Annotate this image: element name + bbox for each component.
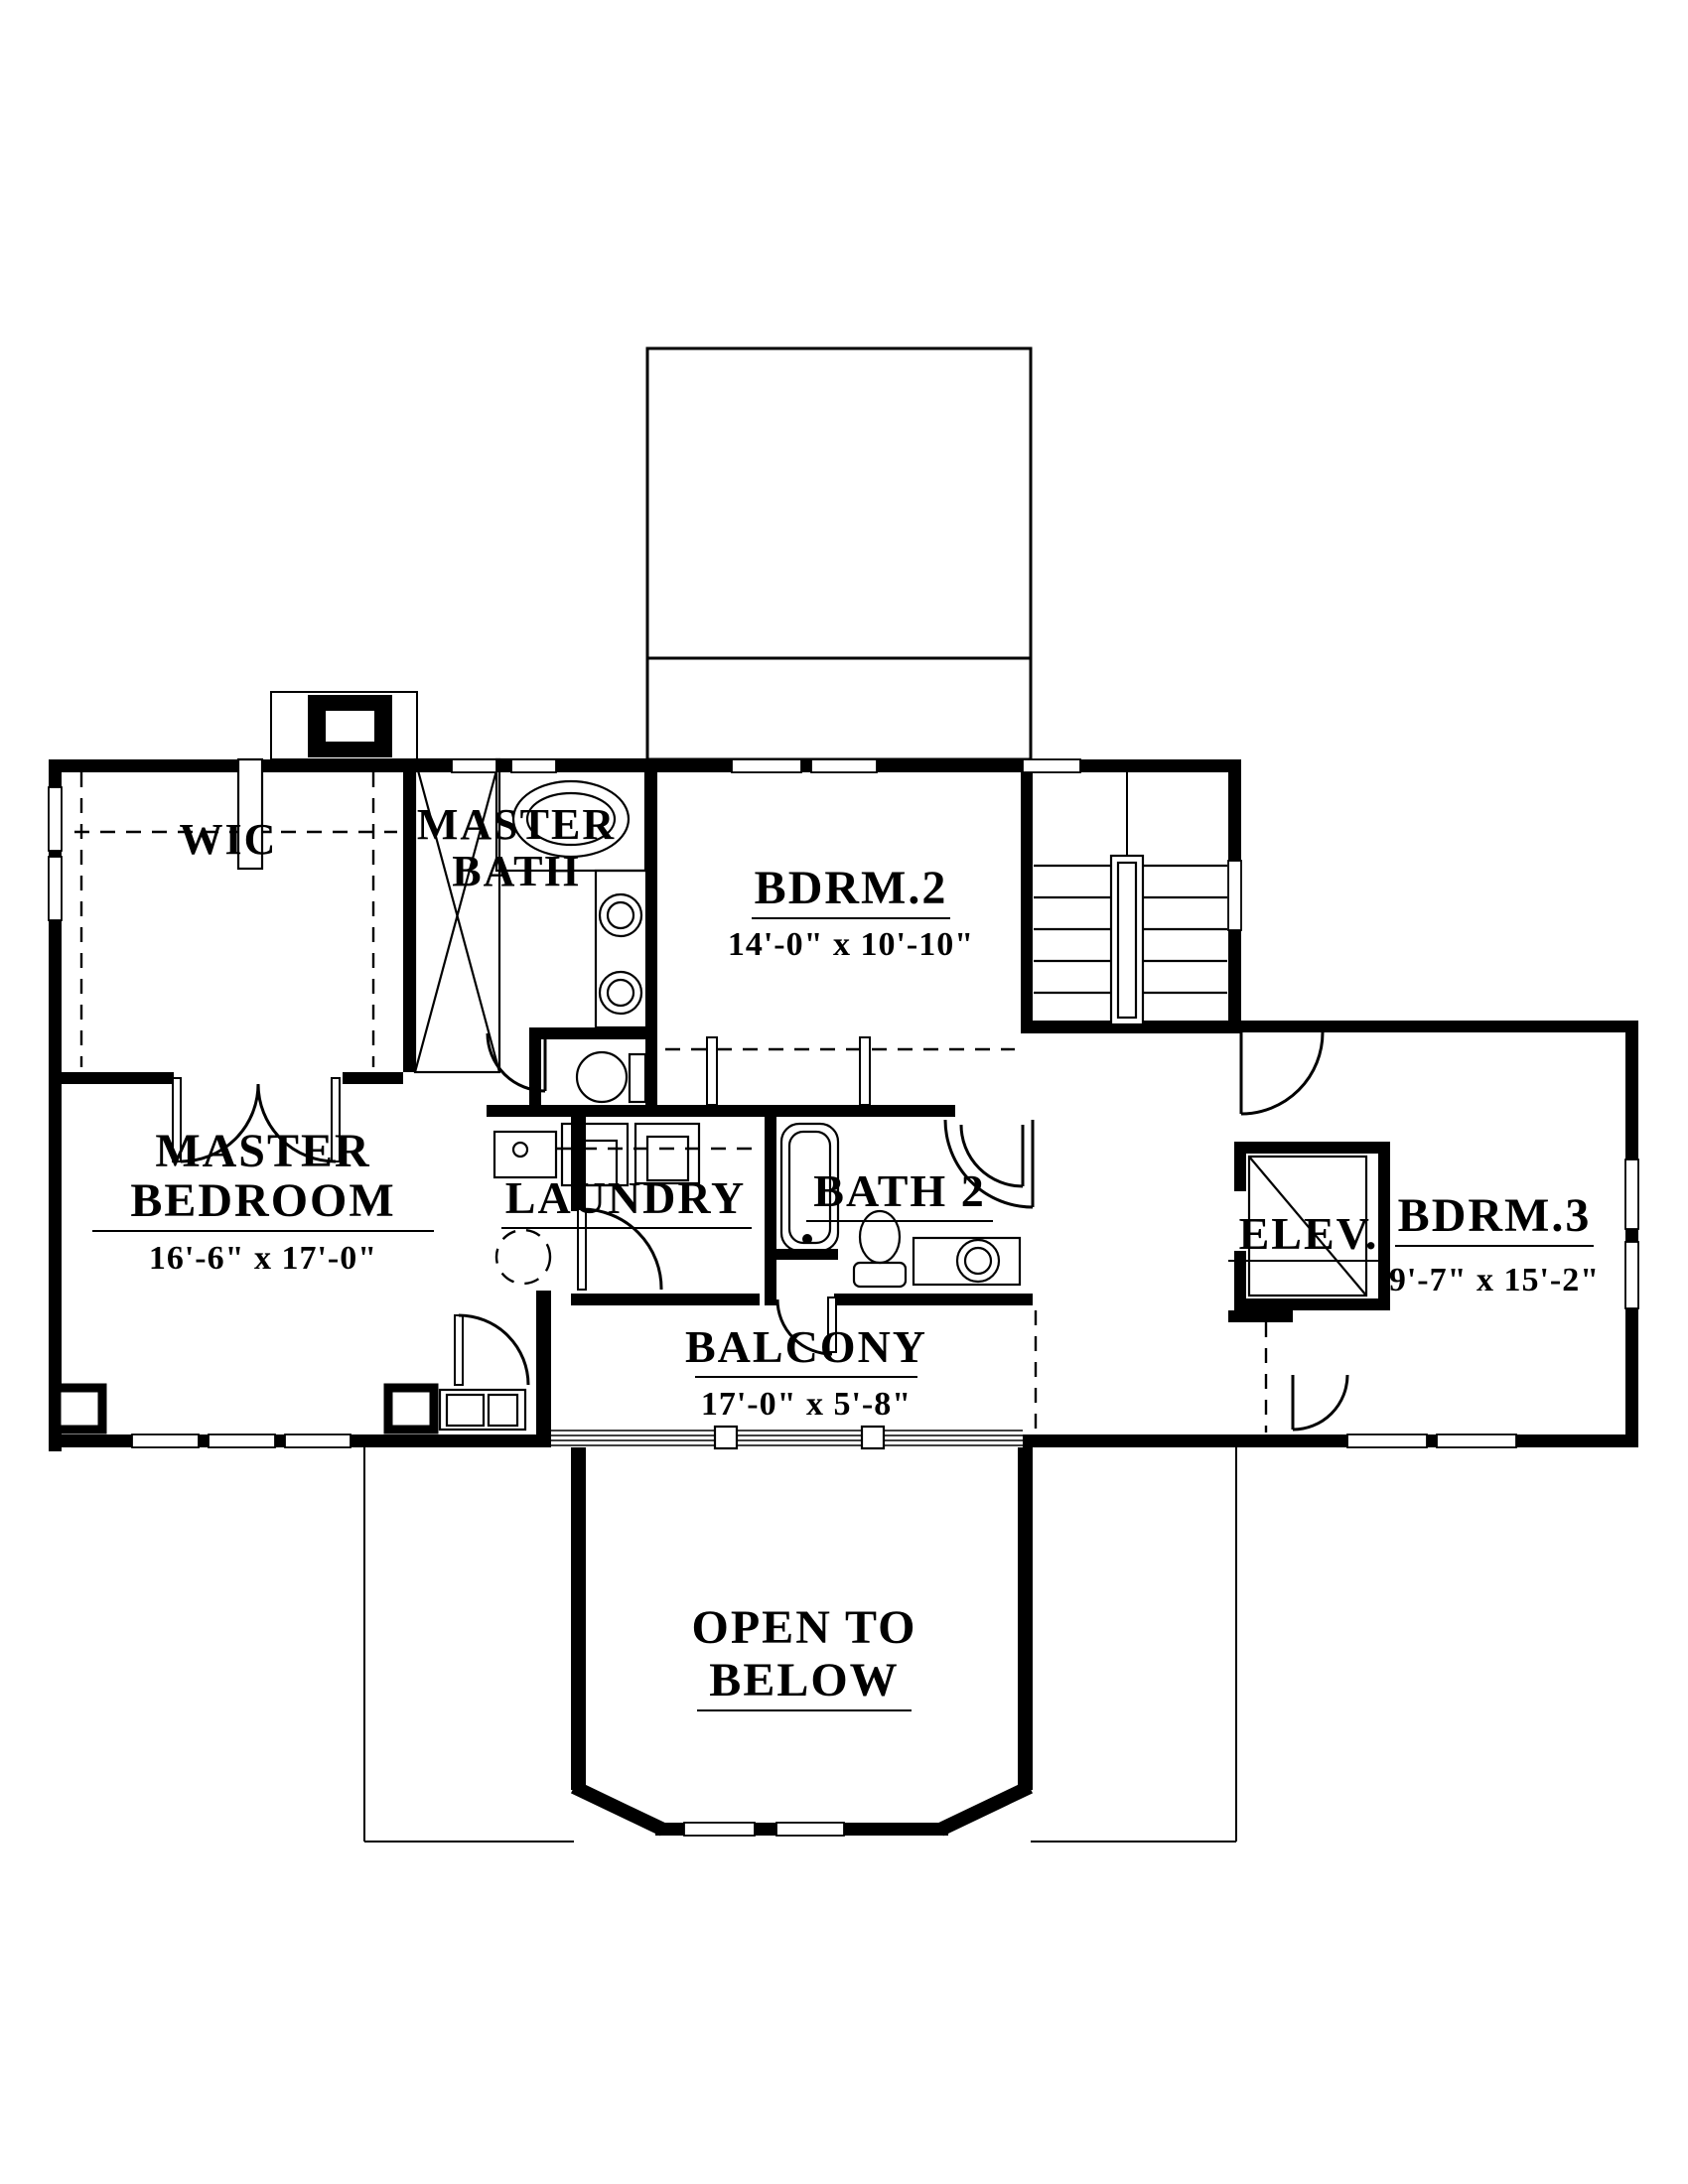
floor-plan-page: WIC MASTER BATH BDRM.2 14'-0" x 10'-10" … xyxy=(0,0,1688,2184)
closet-jamb xyxy=(707,1037,717,1105)
room-dims-master-bedroom: 16'-6" x 17'-0" xyxy=(149,1240,377,1277)
room-label-master-bedroom-line1: MASTER xyxy=(155,1125,370,1177)
room-dims-bdrm3: 9'-7" x 15'-2" xyxy=(1389,1262,1600,1298)
room-label-bdrm2: BDRM.2 xyxy=(755,862,948,914)
double-vanity-sinks-icon xyxy=(596,871,646,1027)
room-label-master-bath-line1: MASTER xyxy=(417,800,616,849)
room-label-balcony: BALCONY xyxy=(685,1321,927,1372)
room-label-open-below-line2: BELOW xyxy=(709,1654,899,1706)
closet-shelving-dashed xyxy=(74,772,1266,1433)
chimney-icon xyxy=(271,692,417,759)
toilet-icon xyxy=(577,1052,645,1102)
room-label-master-bath-line2: BATH xyxy=(452,847,580,895)
room-label-bath2: BATH 2 xyxy=(813,1165,985,1216)
water-heater-dashed-icon xyxy=(496,1230,550,1284)
room-label-bdrm3: BDRM.3 xyxy=(1398,1189,1592,1242)
toilet-icon xyxy=(854,1211,906,1287)
corner-pier-left xyxy=(57,1388,102,1430)
room-label-elev: ELEV. xyxy=(1239,1208,1379,1259)
closet-jamb xyxy=(860,1037,870,1105)
roof-outline-above xyxy=(647,348,1031,759)
stairs-icon xyxy=(1034,772,1227,1024)
balcony-railing-icon xyxy=(551,1427,1023,1448)
built-in-cabinet-icon xyxy=(440,1390,525,1430)
room-label-laundry: LAUNDRY xyxy=(505,1172,746,1223)
floor-plan-drawing: WIC MASTER BATH BDRM.2 14'-0" x 10'-10" … xyxy=(0,0,1688,2184)
vanity-sink-icon xyxy=(914,1238,1020,1285)
room-dims-balcony: 17'-0" x 5'-8" xyxy=(701,1386,912,1423)
corner-pier-right xyxy=(388,1388,434,1430)
room-label-wic: WIC xyxy=(180,815,278,864)
room-dims-bdrm2: 14'-0" x 10'-10" xyxy=(728,926,974,963)
room-label-master-bedroom-line2: BEDROOM xyxy=(130,1174,395,1227)
room-label-open-below-line1: OPEN TO xyxy=(692,1601,917,1654)
utility-sink-icon xyxy=(494,1132,556,1177)
